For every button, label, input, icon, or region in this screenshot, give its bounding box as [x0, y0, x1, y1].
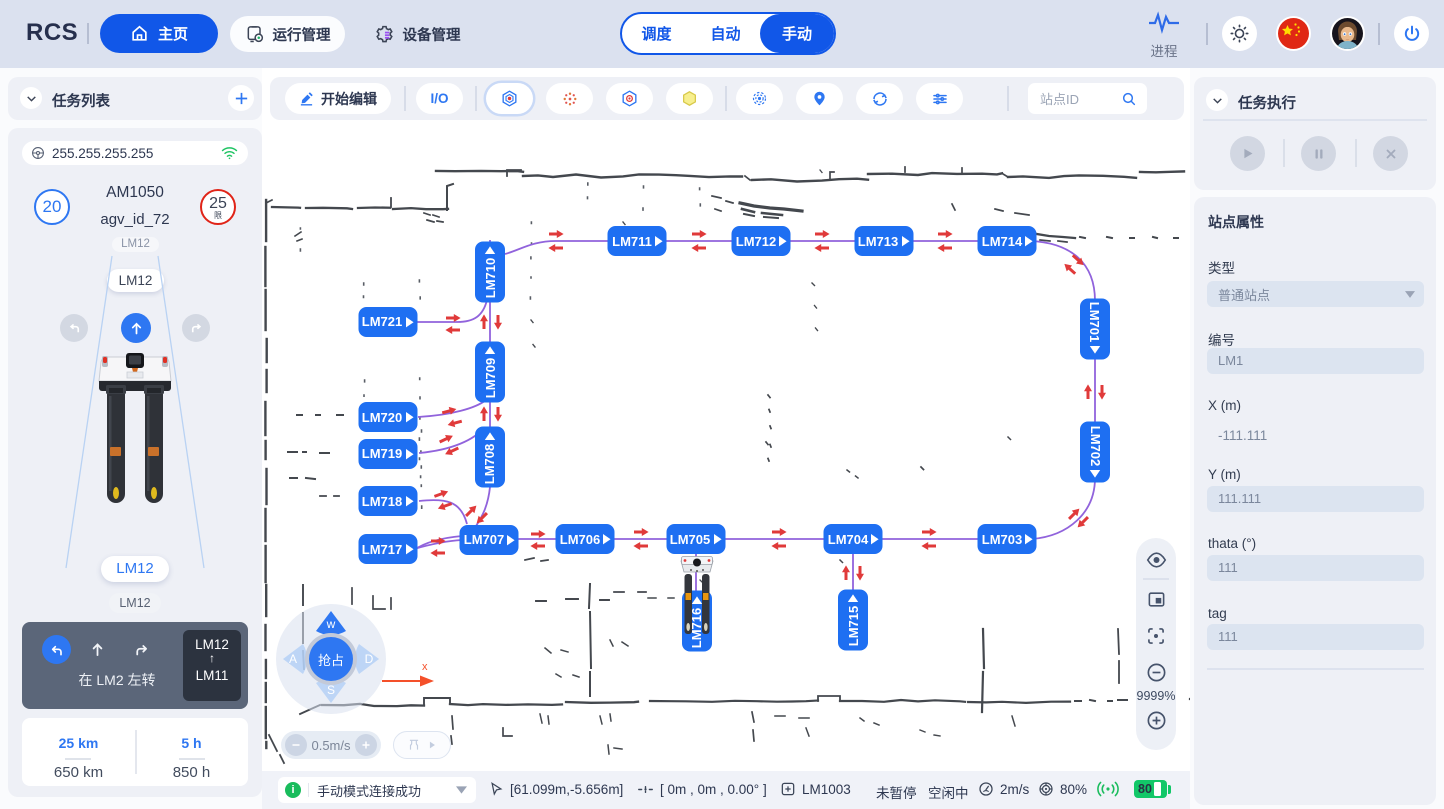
svg-text:LM707: LM707	[464, 532, 504, 547]
svg-text:LM701: LM701	[1087, 302, 1102, 342]
svg-text:LM715: LM715	[846, 606, 861, 646]
svg-text:LM704: LM704	[828, 532, 869, 547]
svg-text:LM713: LM713	[858, 234, 898, 249]
svg-text:LM718: LM718	[362, 494, 402, 509]
svg-text:w: w	[326, 617, 336, 631]
svg-text:LM708: LM708	[482, 444, 497, 484]
svg-text:S: S	[327, 683, 335, 697]
svg-text:LM703: LM703	[982, 532, 1022, 547]
svg-text:LM706: LM706	[560, 532, 600, 547]
svg-text:LM712: LM712	[736, 234, 776, 249]
svg-text:LM719: LM719	[362, 446, 402, 461]
svg-text:LM717: LM717	[362, 542, 402, 557]
svg-text:D: D	[365, 652, 374, 666]
svg-text:LM710: LM710	[483, 258, 498, 298]
svg-text:LM711: LM711	[612, 234, 652, 249]
svg-text:x: x	[422, 661, 428, 673]
svg-text:LM709: LM709	[483, 358, 498, 398]
svg-text:A: A	[289, 652, 297, 666]
svg-text:LM720: LM720	[362, 410, 402, 425]
svg-text:LM714: LM714	[982, 234, 1023, 249]
svg-text:LM705: LM705	[670, 532, 710, 547]
svg-text:LM721: LM721	[362, 314, 402, 329]
svg-text:LM702: LM702	[1088, 426, 1103, 466]
